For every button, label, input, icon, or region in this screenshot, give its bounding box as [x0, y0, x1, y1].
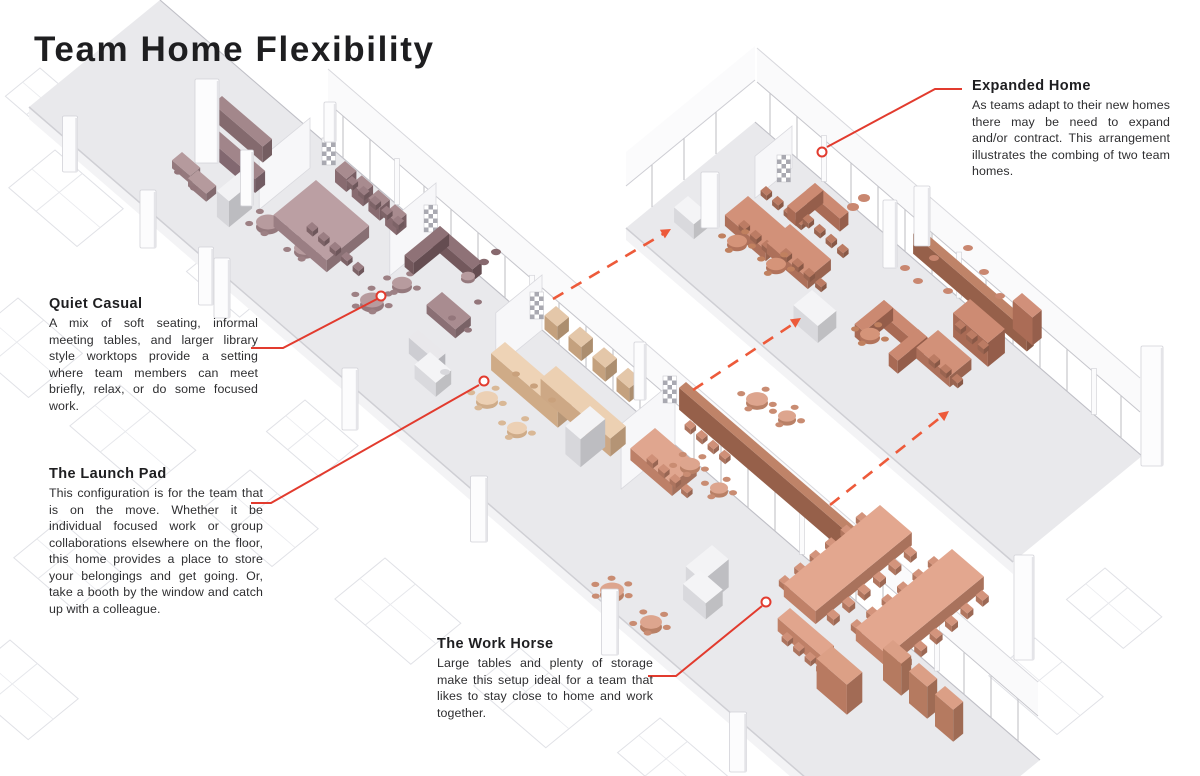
annotation-work-horse-title: The Work Horse	[437, 636, 653, 652]
annotation-launch-pad: The Launch Pad This configuration is for…	[49, 466, 263, 617]
leader-dot-quiet-casual	[377, 292, 386, 301]
page-title: Team Home Flexibility	[34, 30, 435, 70]
leader-dot-launch-pad	[480, 377, 489, 386]
annotation-quiet-casual-body: A mix of soft seating, informal meeting …	[49, 315, 258, 414]
annotation-launch-pad-body: This configuration is for the team that …	[49, 485, 263, 617]
infographic-canvas: Team Home Flexibility Expanded Home As t…	[0, 0, 1200, 776]
annotation-quiet-casual: Quiet Casual A mix of soft seating, info…	[49, 296, 258, 414]
annotation-expanded-home-title: Expanded Home	[972, 78, 1170, 94]
annotation-quiet-casual-title: Quiet Casual	[49, 296, 258, 312]
annotation-expanded-home-body: As teams adapt to their new homes there …	[972, 97, 1170, 180]
annotation-work-horse-body: Large tables and plenty of storage make …	[437, 655, 653, 721]
annotation-work-horse: The Work Horse Large tables and plenty o…	[437, 636, 653, 721]
leader-dot-work-horse	[762, 598, 771, 607]
annotation-launch-pad-title: The Launch Pad	[49, 466, 263, 482]
annotation-expanded-home: Expanded Home As teams adapt to their ne…	[972, 78, 1170, 180]
leader-dot-expanded-home	[818, 148, 827, 157]
